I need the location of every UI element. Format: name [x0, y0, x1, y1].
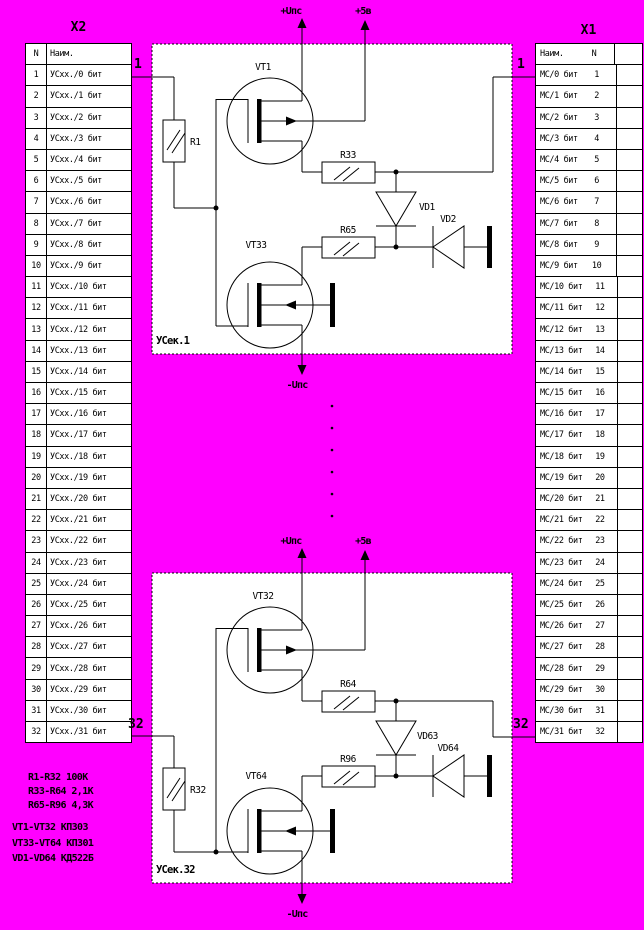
right-pin-bottom-label: 32	[513, 718, 529, 731]
signal-name-cell: МС/2 бит	[536, 113, 578, 123]
pin-number-cell: 9	[26, 235, 47, 255]
table-row: МС/30 бит 31	[536, 701, 642, 722]
signal-name-cell: УСхх./6 бит	[47, 197, 131, 207]
spare-column	[617, 574, 642, 594]
table-row: 26 УСхх./25 бит	[26, 595, 131, 616]
spare-column	[617, 658, 642, 678]
spare-column	[617, 553, 642, 573]
table-row: 28 УСхх./27 бит	[26, 637, 131, 658]
table-row: 31 УСхх./30 бит	[26, 701, 131, 722]
table-row: 3 УСхх./2 бит	[26, 108, 131, 129]
signal-name-cell: МС/4 бит	[536, 155, 578, 165]
spare-column	[617, 616, 642, 636]
pin-number-cell: 17	[26, 404, 47, 424]
pin-number-cell: 10	[26, 256, 47, 276]
signal-name-cell: УСхх./28 бит	[47, 664, 131, 674]
rail-plus-5v: +5в	[355, 6, 371, 44]
table-row: МС/9 бит 10	[536, 256, 642, 277]
signal-name-cell: МС/31 бит	[536, 727, 582, 737]
table-header-row: Наим. N	[536, 44, 642, 65]
part-types-notes: VT1-VT32 КП303VT33-VT64 КП301VD1-VD64 КД…	[12, 820, 93, 867]
signal-name-cell: МС/20 бит	[536, 494, 582, 504]
signal-name-cell: УСхх./10 бит	[47, 282, 131, 292]
signal-name-cell: УСхх./19 бит	[47, 473, 131, 483]
table-row: МС/18 бит 19	[536, 447, 642, 468]
pin-number-cell: 4	[26, 129, 47, 149]
table-row: 9 УСхх./8 бит	[26, 235, 131, 256]
table-row: МС/20 бит 21	[536, 489, 642, 510]
transistor-label: VT33	[246, 240, 267, 251]
signal-name-cell: УСхх./21 бит	[47, 515, 131, 525]
pin-number-cell: 32	[582, 727, 617, 737]
pin-number-cell: 30	[26, 680, 47, 700]
table-row: 13 УСхх./12 бит	[26, 319, 131, 340]
pin-number-cell: 10	[578, 261, 616, 271]
signal-name-cell: МС/26 бит	[536, 621, 582, 631]
table-row: 11 УСхх./10 бит	[26, 277, 131, 298]
pin-number-cell: 18	[582, 430, 617, 440]
table-row: МС/10 бит 11	[536, 277, 642, 298]
svg-text:+5в: +5в	[355, 536, 371, 547]
signal-name-cell: МС/21 бит	[536, 515, 582, 525]
svg-text:-Uпс: -Uпс	[287, 380, 309, 391]
spare-column	[616, 256, 642, 276]
signal-name-cell: МС/25 бит	[536, 600, 582, 610]
table-row: МС/24 бит 25	[536, 574, 642, 595]
resistor-values-notes: R1-R32 100КR33-R64 2,1КR65-R96 4,3К	[28, 771, 93, 813]
spare-column	[617, 383, 642, 403]
signal-name-cell: УСхх./12 бит	[47, 325, 131, 335]
table-row: МС/12 бит 13	[536, 319, 642, 340]
pin-number-cell: 17	[582, 409, 617, 419]
signal-name-cell: МС/6 бит	[536, 197, 578, 207]
signal-name-cell: УСхх./30 бит	[47, 706, 131, 716]
signal-name-cell: МС/13 бит	[536, 346, 582, 356]
pin-number-cell: 16	[582, 388, 617, 398]
pin-number-cell: 25	[582, 579, 617, 589]
table-row: МС/14 бит 15	[536, 362, 642, 383]
signal-name-cell: УСхх./15 бит	[47, 388, 131, 398]
pin-number-cell: 27	[582, 621, 617, 631]
rail-minus-ups: -Uпс	[287, 354, 309, 391]
pin-number-cell: 26	[26, 595, 47, 615]
section-label: УСек.1	[156, 335, 190, 347]
rail-plus-5v: +5в	[355, 536, 371, 573]
spare-column	[617, 637, 642, 657]
table-row: МС/17 бит 18	[536, 425, 642, 446]
resistor-label: R32	[190, 785, 206, 796]
pin-number-cell: 23	[582, 536, 617, 546]
pin-number-cell: 9	[578, 240, 616, 250]
table-row: 6 УСхх./5 бит	[26, 171, 131, 192]
pin-number-cell: 1	[578, 70, 616, 80]
right-pin-top-label: 1	[517, 58, 525, 71]
diode-label: VD2	[440, 214, 456, 225]
resistor-label: R33	[340, 150, 356, 161]
table-row: 32 УСхх./31 бит	[26, 722, 131, 742]
signal-name-cell: МС/3 бит	[536, 134, 578, 144]
section-32: R32 VT32 R64	[132, 536, 535, 920]
table-row: МС/21 бит 22	[536, 510, 642, 531]
pin-number-cell: 31	[582, 706, 617, 716]
section-1: R1 VT1 R33	[132, 6, 535, 391]
spare-column	[616, 235, 642, 255]
table-row: МС/13 бит 14	[536, 341, 642, 362]
table-row: МС/27 бит 28	[536, 637, 642, 658]
table-row: МС/0 бит 1	[536, 65, 642, 86]
signal-name-cell: УСхх./25 бит	[47, 600, 131, 610]
table-row: МС/1 бит 2	[536, 86, 642, 107]
spare-column	[616, 108, 642, 128]
pin-number-cell: 8	[26, 214, 47, 234]
signal-name-cell: УСхх./18 бит	[47, 452, 131, 462]
pin-number-cell: 12	[582, 303, 617, 313]
table-row: 21 УСхх./20 бит	[26, 489, 131, 510]
table-row: 7 УСхх./6 бит	[26, 192, 131, 213]
signal-name-cell: УСхх./16 бит	[47, 409, 131, 419]
signal-name-cell: МС/23 бит	[536, 558, 582, 568]
pin-number-cell: 13	[582, 325, 617, 335]
pin-number-cell: 6	[26, 171, 47, 191]
pin-number-cell: 5	[26, 150, 47, 170]
table-row: 24 УСхх./23 бит	[26, 553, 131, 574]
pin-number-cell: 2	[578, 91, 616, 101]
spare-column	[616, 65, 642, 85]
note-line: VT33-VT64 КП301	[12, 836, 93, 852]
table-row: МС/6 бит 7	[536, 192, 642, 213]
bus-terminator-bar	[330, 283, 335, 327]
signal-name-cell: УСхх./11 бит	[47, 303, 131, 313]
pin-number-cell: 29	[582, 664, 617, 674]
bus-terminator-bar	[487, 755, 492, 797]
rail-minus-ups: -Uпс	[287, 883, 309, 920]
note-line: VD1-VD64 КД522Б	[12, 851, 93, 867]
header-name: Наим.	[536, 49, 574, 59]
header-name: Наим.	[47, 49, 131, 59]
signal-name-cell: УСхх./14 бит	[47, 367, 131, 377]
left-connector-table: N Наим. 1 УСхх./0 бит 2 УСхх./1 бит 3 УС…	[25, 43, 132, 743]
header-n: N	[574, 49, 614, 59]
spare-column	[617, 531, 642, 551]
table-row: 27 УСхх./26 бит	[26, 616, 131, 637]
svg-text:+5в: +5в	[355, 6, 371, 17]
pin-number-cell: 23	[26, 531, 47, 551]
signal-name-cell: УСхх./9 бит	[47, 261, 131, 271]
transistor-label: VT64	[246, 771, 268, 782]
table-row: МС/4 бит 5	[536, 150, 642, 171]
spare-column	[617, 404, 642, 424]
signal-name-cell: МС/5 бит	[536, 176, 578, 186]
signal-name-cell: МС/27 бит	[536, 642, 582, 652]
spare-column	[617, 447, 642, 467]
signal-name-cell: МС/30 бит	[536, 706, 582, 716]
spare-column	[617, 595, 642, 615]
signal-name-cell: МС/10 бит	[536, 282, 582, 292]
signal-name-cell: УСхх./7 бит	[47, 219, 131, 229]
signal-name-cell: МС/22 бит	[536, 536, 582, 546]
diode-label: VD64	[438, 743, 460, 754]
signal-name-cell: МС/15 бит	[536, 388, 582, 398]
pin-number-cell: 3	[26, 108, 47, 128]
pin-number-cell: 11	[26, 277, 47, 297]
table-row: МС/16 бит 17	[536, 404, 642, 425]
pin-number-cell: 28	[582, 642, 617, 652]
table-row: 23 УСхх./22 бит	[26, 531, 131, 552]
table-row: 18 УСхх./17 бит	[26, 425, 131, 446]
table-row: МС/19 бит 20	[536, 468, 642, 489]
signal-name-cell: МС/17 бит	[536, 430, 582, 440]
note-line: R65-R96 4,3К	[28, 799, 93, 813]
signal-name-cell: МС/24 бит	[536, 579, 582, 589]
pin-number-cell: 4	[578, 134, 616, 144]
pin-number-cell: 12	[26, 298, 47, 318]
table-row: 5 УСхх./4 бит	[26, 150, 131, 171]
pin-number-cell: 15	[26, 362, 47, 382]
pin-number-cell: 19	[26, 447, 47, 467]
pin-number-cell: 5	[578, 155, 616, 165]
table-row: 20 УСхх./19 бит	[26, 468, 131, 489]
spare-column	[616, 171, 642, 191]
pin-number-cell: 20	[582, 473, 617, 483]
header-n: N	[26, 44, 47, 64]
pin-number-cell: 16	[26, 383, 47, 403]
spare-column	[617, 722, 642, 742]
table-row: 25 УСхх./24 бит	[26, 574, 131, 595]
table-row: 12 УСхх./11 бит	[26, 298, 131, 319]
resistor-label: R65	[340, 225, 356, 236]
pin-number-cell: 14	[582, 346, 617, 356]
table-row: 29 УСхх./28 бит	[26, 658, 131, 679]
signal-name-cell: МС/19 бит	[536, 473, 582, 483]
svg-text:+Uпс: +Uпс	[281, 6, 303, 17]
signal-name-cell: УСхх./2 бит	[47, 113, 131, 123]
signal-name-cell: УСхх./20 бит	[47, 494, 131, 504]
signal-name-cell: УСхх./5 бит	[47, 176, 131, 186]
spare-column	[617, 468, 642, 488]
signal-name-cell: МС/1 бит	[536, 91, 578, 101]
pin-number-cell: 22	[26, 510, 47, 530]
signal-name-cell: МС/29 бит	[536, 685, 582, 695]
svg-text:+Uпс: +Uпс	[281, 536, 303, 547]
signal-name-cell: УСхх./8 бит	[47, 240, 131, 250]
spare-column	[617, 341, 642, 361]
transistor-label: VT1	[255, 62, 271, 73]
pin-number-cell: 24	[582, 558, 617, 568]
pin-number-cell: 25	[26, 574, 47, 594]
note-line: R33-R64 2,1К	[28, 785, 93, 799]
pin-number-cell: 29	[26, 658, 47, 678]
table-row: 1 УСхх./0 бит	[26, 65, 131, 86]
pin-number-cell: 18	[26, 425, 47, 445]
resistor-label: R1	[190, 137, 201, 148]
signal-name-cell: УСхх./31 бит	[47, 727, 131, 737]
table-row: 16 УСхх./15 бит	[26, 383, 131, 404]
pin-number-cell: 30	[582, 685, 617, 695]
table-row: 8 УСхх./7 бит	[26, 214, 131, 235]
spare-column	[616, 129, 642, 149]
table-row: 17 УСхх./16 бит	[26, 404, 131, 425]
signal-name-cell: УСхх./1 бит	[47, 91, 131, 101]
pin-number-cell: 13	[26, 319, 47, 339]
pin-number-cell: 8	[578, 219, 616, 229]
right-connector-table: Наим. N МС/0 бит 1 МС/1 бит 2 МС/2 бит 3	[535, 43, 643, 743]
table-row: 15 УСхх./14 бит	[26, 362, 131, 383]
signal-name-cell: МС/16 бит	[536, 409, 582, 419]
signal-name-cell: МС/28 бит	[536, 664, 582, 674]
signal-name-cell: МС/18 бит	[536, 452, 582, 462]
diode-label: VD63	[417, 731, 438, 742]
signal-name-cell: УСхх./17 бит	[47, 430, 131, 440]
pin-number-cell: 31	[26, 701, 47, 721]
spare-column	[616, 86, 642, 106]
left-connector-title: X2	[25, 20, 132, 35]
note-line: VT1-VT32 КП303	[12, 820, 93, 836]
bus-terminator-bar	[487, 226, 492, 268]
table-row: 2 УСхх./1 бит	[26, 86, 131, 107]
signal-name-cell: УСхх./29 бит	[47, 685, 131, 695]
table-row: 30 УСхх./29 бит	[26, 680, 131, 701]
diode-label: VD1	[419, 202, 435, 213]
pin-number-cell: 20	[26, 468, 47, 488]
table-row: МС/22 бит 23	[536, 531, 642, 552]
pin-number-cell: 2	[26, 86, 47, 106]
table-row: МС/28 бит 29	[536, 658, 642, 679]
spare-column	[617, 701, 642, 721]
pin-number-cell: 19	[582, 452, 617, 462]
table-row: 22 УСхх./21 бит	[26, 510, 131, 531]
pin-number-cell: 22	[582, 515, 617, 525]
table-row: МС/3 бит 4	[536, 129, 642, 150]
signal-name-cell: УСхх./23 бит	[47, 558, 131, 568]
spare-column	[617, 425, 642, 445]
signal-name-cell: УСхх./26 бит	[47, 621, 131, 631]
pin-number-cell: 24	[26, 553, 47, 573]
table-header-row: N Наим.	[26, 44, 131, 65]
signal-name-cell: УСхх./13 бит	[47, 346, 131, 356]
spare-column	[616, 214, 642, 234]
table-row: МС/26 бит 27	[536, 616, 642, 637]
table-row: 10 УСхх./9 бит	[26, 256, 131, 277]
signal-name-cell: УСхх./27 бит	[47, 642, 131, 652]
spare-column	[614, 44, 642, 64]
table-row: МС/29 бит 30	[536, 680, 642, 701]
pin-number-cell: 21	[582, 494, 617, 504]
table-row: 14 УСхх./13 бит	[26, 341, 131, 362]
pin-number-cell: 7	[578, 197, 616, 207]
pin-number-cell: 3	[578, 113, 616, 123]
svg-text:-Uпс: -Uпс	[287, 909, 309, 920]
signal-name-cell: УСхх./4 бит	[47, 155, 131, 165]
spare-column	[616, 192, 642, 212]
pin-number-cell: 26	[582, 600, 617, 610]
table-row: МС/23 бит 24	[536, 553, 642, 574]
table-row: МС/5 бит 6	[536, 171, 642, 192]
spare-column	[617, 510, 642, 530]
pin-number-cell: 21	[26, 489, 47, 509]
signal-name-cell: МС/0 бит	[536, 70, 578, 80]
pin-number-cell: 7	[26, 192, 47, 212]
signal-name-cell: УСхх./3 бит	[47, 134, 131, 144]
signal-name-cell: УСхх./0 бит	[47, 70, 131, 80]
pin-number-cell: 14	[26, 341, 47, 361]
pin-number-cell: 32	[26, 722, 47, 742]
table-row: 4 УСхх./3 бит	[26, 129, 131, 150]
rail-plus-ups: +Uпс	[281, 536, 307, 573]
pin-number-cell: 15	[582, 367, 617, 377]
resistor-label: R64	[340, 679, 356, 690]
spare-column	[617, 298, 642, 318]
spare-column	[617, 489, 642, 509]
spare-column	[617, 362, 642, 382]
table-row: МС/11 бит 12	[536, 298, 642, 319]
left-pin-bottom-label: 32	[128, 718, 144, 731]
signal-name-cell: МС/12 бит	[536, 325, 582, 335]
table-row: МС/31 бит 32	[536, 722, 642, 742]
signal-name-cell: МС/14 бит	[536, 367, 582, 377]
table-row: 19 УСхх./18 бит	[26, 447, 131, 468]
table-row: МС/8 бит 9	[536, 235, 642, 256]
signal-name-cell: МС/7 бит	[536, 219, 578, 229]
table-row: МС/2 бит 3	[536, 108, 642, 129]
pin-number-cell: 1	[26, 65, 47, 85]
signal-name-cell: УСхх./24 бит	[47, 579, 131, 589]
spare-column	[617, 277, 642, 297]
note-line: R1-R32 100К	[28, 771, 93, 785]
right-connector-title: X1	[535, 23, 642, 38]
spare-column	[617, 319, 642, 339]
pin-number-cell: 27	[26, 616, 47, 636]
section-label: УСек.32	[156, 864, 195, 876]
pin-number-cell: 11	[582, 282, 617, 292]
resistor-label: R96	[340, 754, 356, 765]
spare-column	[617, 680, 642, 700]
table-row: МС/7 бит 8	[536, 214, 642, 235]
signal-name-cell: МС/11 бит	[536, 303, 582, 313]
table-row: МС/15 бит 16	[536, 383, 642, 404]
pin-number-cell: 28	[26, 637, 47, 657]
signal-name-cell: МС/8 бит	[536, 240, 578, 250]
pin-number-cell: 6	[578, 176, 616, 186]
signal-name-cell: МС/9 бит	[536, 261, 578, 271]
repetition-ellipsis	[331, 405, 334, 518]
transistor-label: VT32	[253, 591, 274, 602]
table-row: МС/25 бит 26	[536, 595, 642, 616]
bus-terminator-bar	[330, 809, 335, 853]
rail-plus-ups: +Uпс	[281, 6, 307, 44]
left-pin-top-label: 1	[134, 58, 142, 71]
signal-name-cell: УСхх./22 бит	[47, 536, 131, 546]
spare-column	[616, 150, 642, 170]
